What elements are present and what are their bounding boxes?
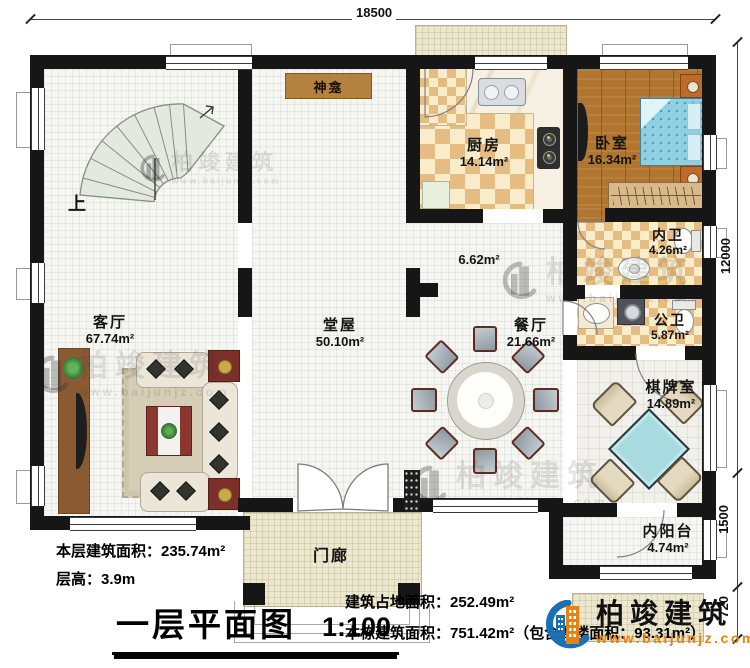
wall: [406, 69, 420, 209]
room-label-chess: 棋牌室 14.89m²: [645, 380, 696, 411]
nightstand: [680, 74, 704, 98]
sofa-right: [202, 382, 238, 482]
wall: [238, 498, 293, 512]
shrine-cabinet: 神龛: [285, 73, 372, 99]
hangers-icon: [613, 187, 699, 205]
wall: [577, 346, 636, 360]
basin-icon: [618, 257, 650, 280]
stove-icon: [537, 127, 560, 169]
room-label-bedroom: 卧室 16.34m²: [588, 136, 636, 167]
brand-name: 柏竣建筑: [596, 600, 750, 628]
window: [703, 385, 717, 471]
kitchen-pantry-corner: [420, 69, 467, 126]
wall: [563, 335, 577, 360]
plan-title: 一层平面图: [116, 598, 296, 646]
terrace-floor: [415, 25, 567, 57]
stairs-up-label: 上: [68, 194, 88, 214]
logo-building-icon: [546, 600, 590, 652]
wall: [563, 209, 577, 301]
bedroom-vestibule-floor: [577, 208, 605, 222]
dining-chair: [411, 388, 437, 412]
dining-chair: [533, 388, 559, 412]
window: [31, 88, 45, 150]
tv-icon: [76, 393, 87, 469]
site-area-text: 建筑占地面积：252.49m²: [345, 591, 514, 612]
wall: [605, 208, 702, 222]
dimension-right-porch: 1500: [716, 505, 731, 534]
plant-icon: [63, 357, 83, 379]
room-label-hall: 堂屋 50.10m²: [316, 318, 364, 349]
dining-chair: [473, 448, 497, 474]
wall: [406, 268, 420, 317]
fridge-icon: [422, 181, 450, 209]
window: [166, 56, 252, 70]
window: [703, 226, 717, 258]
wall: [577, 285, 585, 299]
floor-height-text: 层高：3.9m: [56, 568, 135, 589]
floor-plan-canvas: 柏竣建筑www.baijunjz.com 柏竣建筑www.baijunjz.co…: [0, 0, 750, 668]
pillow: [687, 134, 701, 161]
wall: [702, 55, 716, 579]
brand-url: www.baijunjz.com: [596, 630, 750, 646]
room-label-inner-bath: 内卫 4.26m²: [649, 228, 687, 257]
wall: [406, 209, 483, 223]
window: [31, 263, 45, 303]
sofa-bottom: [140, 472, 210, 512]
brand-logo: 柏竣建筑 www.baijunjz.com: [546, 600, 750, 652]
toilet-tank: [691, 230, 701, 252]
room-label-porch: 门廊: [313, 548, 349, 566]
dimension-right-main: 12000: [718, 238, 733, 274]
side-table: [208, 478, 240, 510]
wall: [549, 503, 563, 579]
sofa-top: [136, 352, 210, 388]
wall: [238, 69, 252, 223]
window-sill: [716, 138, 727, 169]
floor-area-text: 本层建筑面积：235.74m²: [56, 540, 225, 561]
dining-chair: [473, 326, 497, 352]
window: [600, 566, 692, 580]
window-sill: [716, 390, 727, 468]
window: [600, 56, 688, 70]
hall-floor: [252, 69, 406, 498]
window: [433, 499, 538, 513]
coffee-table: [146, 406, 192, 456]
wall: [563, 503, 617, 517]
wall: [238, 268, 252, 317]
wall: [677, 503, 702, 517]
room-label-public-bath: 公卫 5.87m²: [651, 313, 689, 342]
floor-ac-unit: [404, 470, 420, 512]
washing-machine-icon: [617, 298, 645, 325]
window: [31, 466, 45, 506]
dining-table: [447, 362, 525, 440]
basin-icon: [583, 303, 610, 324]
room-label-dining: 餐厅 21.66m²: [507, 318, 555, 349]
window: [703, 135, 717, 170]
wall: [420, 283, 438, 297]
sink-icon: [478, 78, 526, 106]
window: [70, 517, 196, 531]
bath-vanity: [578, 297, 614, 329]
wardrobe: [608, 182, 704, 210]
room-label-living: 客厅 67.74m²: [86, 315, 134, 346]
curved-staircase: [50, 76, 240, 202]
corridor-area-label: 6.62m²: [458, 253, 499, 268]
window: [703, 520, 717, 560]
pillow: [687, 103, 701, 130]
wall: [563, 69, 577, 209]
side-table: [208, 350, 240, 382]
bed: [640, 98, 704, 166]
room-label-inner-balcony: 内阳台 4.74m²: [642, 524, 693, 555]
dimension-line-right: [737, 42, 738, 642]
room-label-kitchen: 厨房 14.14m²: [460, 138, 508, 169]
wall: [620, 285, 702, 299]
wall: [685, 346, 702, 360]
dimension-top-value: 18500: [352, 5, 396, 20]
window: [475, 56, 547, 70]
tv-cabinet: [58, 348, 90, 514]
plant-icon: [161, 423, 177, 439]
